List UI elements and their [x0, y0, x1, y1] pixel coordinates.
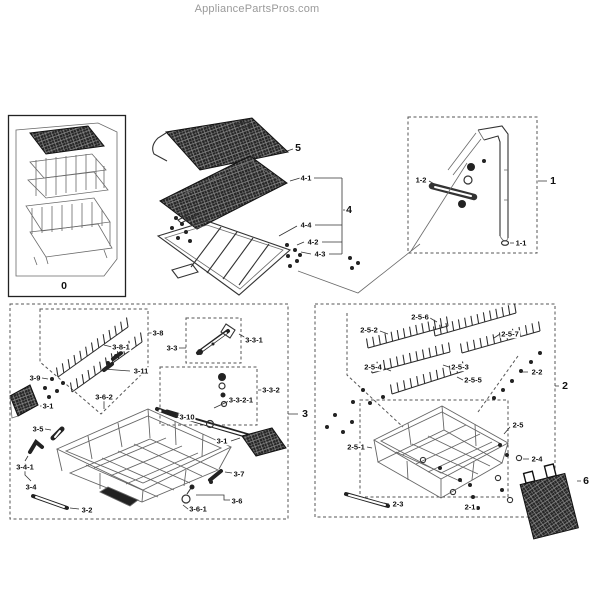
tine-row-art: [57, 318, 129, 378]
silverware-basket-art: [517, 462, 578, 539]
tine-row-art: [371, 343, 451, 374]
rack-insert-piece-art: [242, 428, 286, 456]
clip-dots: [325, 351, 542, 434]
upper-rack-art: [374, 406, 508, 498]
upper-tray-art: [160, 156, 287, 229]
water-tube-art: [411, 126, 509, 251]
rack-corner-piece-art: [10, 385, 38, 418]
tine-kit-box: [40, 309, 148, 414]
site-watermark: AppliancePartsPros.com: [195, 3, 320, 15]
rack-rail-art: [346, 494, 388, 506]
tine-row-art: [461, 322, 541, 354]
lower-spray-arm-art: [167, 373, 252, 438]
tine-row-art: [391, 362, 465, 395]
rail-frame-art: [158, 221, 290, 295]
full-assembly-art: [26, 126, 112, 265]
leader-lines: [25, 149, 581, 509]
tine-row-art: [434, 304, 517, 337]
third-rack-tray-art: [153, 118, 288, 170]
feed-tube-art: [197, 324, 235, 355]
parts-diagram: AppliancePartsPros.com 054-144-44-24-311…: [0, 0, 600, 596]
roller-dots: [438, 443, 509, 510]
diagram-art: [0, 0, 600, 596]
upper-rack-box: [360, 400, 508, 497]
